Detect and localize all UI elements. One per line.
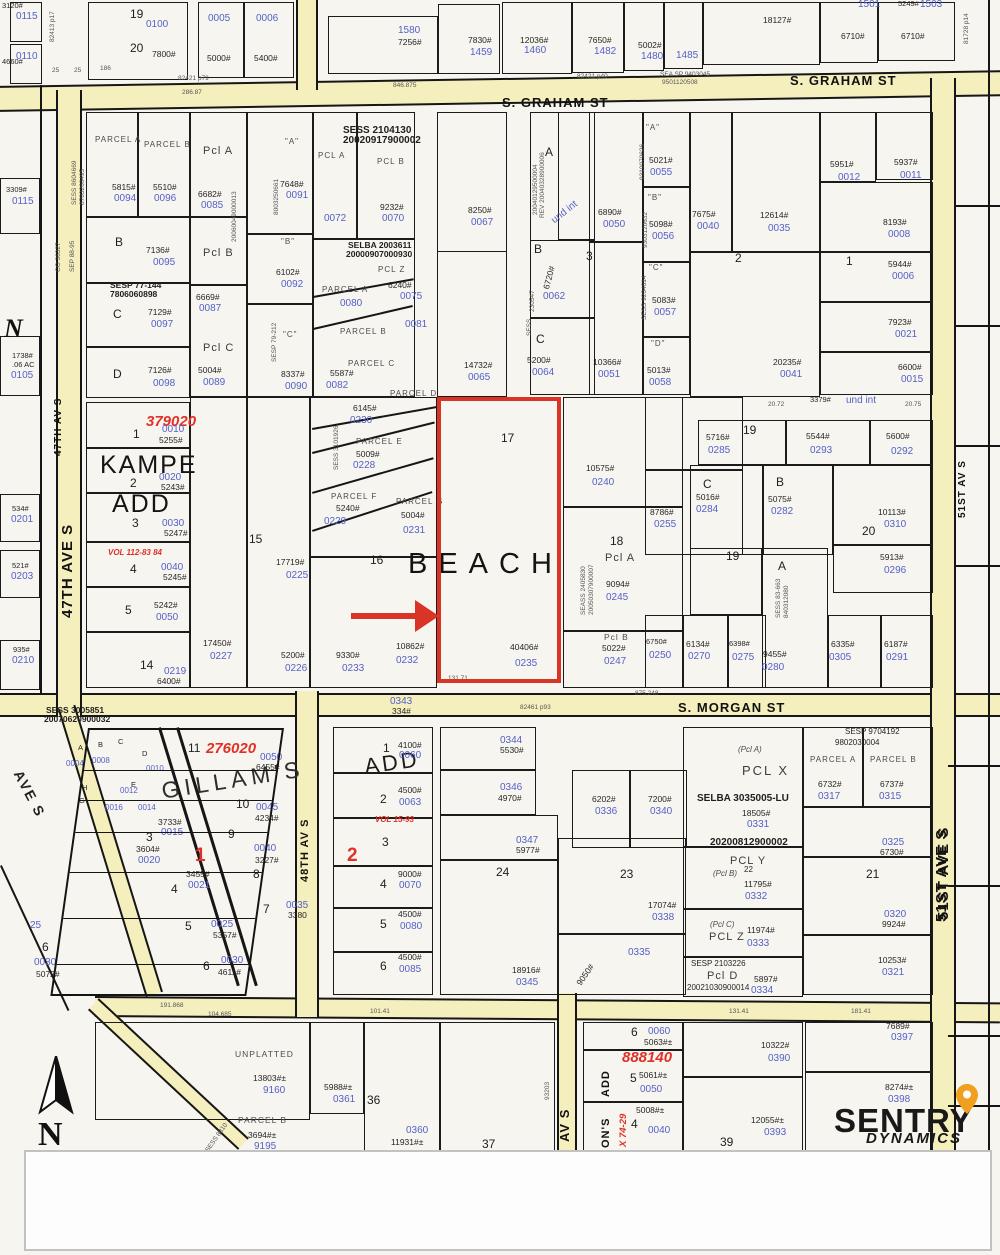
parcel-area-label: 3 bbox=[382, 836, 389, 848]
parcel-id-label: 0092 bbox=[281, 280, 303, 290]
parcel-name-label: PARCEL A bbox=[810, 756, 856, 764]
parcel-name-label: PARCEL B bbox=[144, 141, 191, 149]
street-name-label: ON'S bbox=[601, 1118, 612, 1148]
dimension-label: 840312080 bbox=[784, 585, 791, 618]
dimension-label: 186 bbox=[100, 66, 111, 73]
dimension-label: SESS 9204614 bbox=[642, 276, 649, 320]
street-name-label: 47TH AV S bbox=[54, 398, 64, 456]
parcel-area-label: 5016# bbox=[696, 493, 720, 502]
parcel-area-label: 22 bbox=[744, 866, 753, 874]
parcel-area-label: 9232# bbox=[380, 203, 404, 212]
parcel-id-label: 0067 bbox=[471, 218, 493, 228]
parcel-area-label: 1738# bbox=[12, 352, 33, 360]
street-name-label: 51ST AVE S bbox=[936, 827, 951, 920]
parcel-area-label: 9330# bbox=[336, 651, 360, 660]
parcel-area-label: 5815# bbox=[112, 183, 136, 192]
parcel-id-label: 0011 bbox=[900, 171, 922, 181]
parcel-id-label: 0282 bbox=[771, 507, 793, 517]
parcel-id-label: 0115 bbox=[16, 12, 38, 22]
parcel-id-label: 0060 bbox=[648, 1027, 670, 1037]
parcel-id-label: 0345 bbox=[516, 978, 538, 988]
parcel-area-label: 5 bbox=[630, 1072, 637, 1084]
parcel-area-label: 9000# bbox=[398, 870, 422, 879]
parcel-area-label: 4 bbox=[631, 1118, 638, 1130]
parcel-boundary bbox=[786, 420, 870, 465]
dimension-label: 846.875 bbox=[393, 83, 417, 90]
parcel-area-label: 12055#± bbox=[751, 1116, 784, 1125]
subdivision-name-label: N bbox=[4, 316, 23, 342]
parcel-area-label: 7806060898 bbox=[110, 290, 157, 299]
dimension-label: 8003250661 bbox=[274, 179, 281, 215]
parcel-area-label: 9455# bbox=[763, 650, 787, 659]
parcel-area-label: 6600# bbox=[898, 363, 922, 372]
plat-number-label: VOL 15-93 bbox=[375, 816, 414, 824]
parcel-area-label: 4 bbox=[130, 563, 137, 575]
parcel-area-label: 18 bbox=[610, 535, 623, 547]
parcel-area-label: SESP 2103226 bbox=[691, 960, 746, 968]
street-name-label: 48TH AV S bbox=[300, 819, 311, 882]
parcel-area-label: 24 bbox=[496, 866, 509, 878]
dimension-label: SESS 83-663 bbox=[776, 579, 783, 618]
parcel-area-label: 7256# bbox=[398, 38, 422, 47]
dimension-label: 104.685 bbox=[208, 1012, 232, 1019]
parcel-id-label: 0080 bbox=[400, 922, 422, 932]
parcel-area-label: 334# bbox=[392, 707, 411, 716]
highlight-arrow-head-icon bbox=[415, 600, 439, 632]
parcel-area-label: 6 bbox=[631, 1026, 638, 1038]
parcel-id-label: 0030 bbox=[34, 958, 56, 968]
parcel-boundary bbox=[870, 420, 933, 465]
parcel-id-label: 0006 bbox=[256, 14, 278, 24]
map-pin-icon bbox=[956, 1084, 978, 1119]
sentry-logo-subtext: DYNAMICS bbox=[866, 1130, 962, 1147]
parcel-area-label: 6750# bbox=[646, 638, 667, 646]
parcel-name-label: Pcl A bbox=[203, 146, 233, 157]
boundary-line bbox=[956, 325, 1000, 327]
parcel-id-label: 0305 bbox=[829, 653, 851, 663]
boundary-line bbox=[948, 765, 1000, 767]
parcel-id-label: 0095 bbox=[153, 258, 175, 268]
parcel-area-label: 10862# bbox=[396, 642, 424, 651]
north-label: N bbox=[38, 1116, 63, 1154]
parcel-area-label: 3120# bbox=[2, 2, 23, 10]
parcel-id-label: 0050 bbox=[603, 220, 625, 230]
parcel-name-label: "A" bbox=[285, 138, 299, 146]
parcel-id-label: 0094 bbox=[114, 194, 136, 204]
highlight-rectangle bbox=[437, 397, 561, 683]
parcel-area-label: 6134# bbox=[686, 640, 710, 649]
parcel-boundary bbox=[803, 807, 933, 857]
parcel-id-label: 0041 bbox=[780, 370, 802, 380]
parcel-area-label: 18505# bbox=[742, 809, 770, 818]
parcel-area-label: 5013# bbox=[647, 366, 671, 375]
boundary-line bbox=[988, 0, 990, 1150]
parcel-id-label: 0089 bbox=[203, 378, 225, 388]
parcel-id-label: 0336 bbox=[595, 807, 617, 817]
dimension-label: 101.41 bbox=[370, 1009, 390, 1016]
boundary-line bbox=[956, 565, 1000, 567]
dimension-label: 286.87 bbox=[182, 90, 202, 97]
parcel-boundary bbox=[440, 815, 558, 860]
parcel-area-label: 6737# bbox=[880, 780, 904, 789]
parcel-area-label: 6682# bbox=[198, 190, 222, 199]
parcel-area-label: 5988#± bbox=[324, 1083, 352, 1092]
parcel-area-label: 13803#± bbox=[253, 1074, 286, 1083]
parcel-area-label: 5400# bbox=[254, 54, 278, 63]
parcel-name-label: PARCEL A bbox=[322, 286, 368, 294]
parcel-id-label: 0065 bbox=[468, 373, 490, 383]
parcel-area-label: 5 bbox=[125, 604, 132, 616]
parcel-area-label: 19 bbox=[130, 8, 143, 20]
parcel-area-label: 14 bbox=[140, 659, 153, 671]
dimension-label: 20060049000013 bbox=[232, 191, 239, 242]
parcel-area-label: 20020917900002 bbox=[343, 136, 421, 146]
parcel-area-label: 10253# bbox=[878, 956, 906, 965]
parcel-area-label: 20235# bbox=[773, 358, 801, 367]
dimension-label: 230547 bbox=[530, 290, 537, 312]
parcel-id-label: 0333 bbox=[747, 939, 769, 949]
parcel-area-label: 1 bbox=[383, 742, 390, 754]
parcel-id-label: 0390 bbox=[768, 1054, 790, 1064]
parcel-name-label: Pcl D bbox=[707, 971, 738, 982]
parcel-area-label: 3 bbox=[132, 517, 139, 529]
parcel-area-label: 4 bbox=[380, 878, 387, 890]
parcel-area-label: 37 bbox=[482, 1138, 495, 1150]
parcel-id-label: 0050 bbox=[156, 613, 178, 623]
parcel-area-label: 15 bbox=[249, 533, 262, 545]
parcel-area-label: 8337# bbox=[281, 370, 305, 379]
parcel-area-label: SELBA 3035005-LU bbox=[697, 794, 789, 804]
parcel-area-label: 5022# bbox=[602, 644, 626, 653]
parcel-id-label: 0070 bbox=[382, 214, 404, 224]
parcel-id-label: 0232 bbox=[396, 656, 418, 666]
parcel-id-label: 0051 bbox=[598, 370, 620, 380]
parcel-id-label: 0331 bbox=[747, 820, 769, 830]
parcel-id-label: 0021 bbox=[895, 330, 917, 340]
parcel-name-label: PCL B bbox=[377, 158, 405, 166]
parcel-area-label: 6240# bbox=[388, 281, 412, 290]
parcel-name-label: "B" bbox=[281, 238, 295, 246]
parcel-id-label: 0210 bbox=[12, 656, 34, 666]
parcel-id-label: 0397 bbox=[891, 1033, 913, 1043]
parcel-id-label: 0015 bbox=[901, 375, 923, 385]
parcel-id-label: 0100 bbox=[146, 20, 168, 30]
parcel-divider bbox=[70, 872, 262, 873]
parcel-id-label: 0105 bbox=[11, 371, 33, 381]
parcel-area-label: 5249# bbox=[898, 0, 919, 8]
parcel-id-label: 0245 bbox=[606, 593, 628, 603]
parcel-area-label: 16 bbox=[370, 554, 383, 566]
parcel-id-label: 0233 bbox=[342, 664, 364, 674]
gillam-block-outline bbox=[50, 728, 284, 996]
parcel-id-label: 0008 bbox=[888, 230, 910, 240]
parcel-area-label: 3694#± bbox=[248, 1131, 276, 1140]
parcel-area-label: D bbox=[113, 368, 122, 380]
parcel-area-label: A bbox=[778, 560, 786, 572]
parcel-area-label: 7126# bbox=[148, 366, 172, 375]
parcel-area-label: 2 bbox=[380, 793, 387, 805]
parcel-area-label: 20 bbox=[130, 42, 143, 54]
parcel-id-label: 0240 bbox=[592, 478, 614, 488]
parcel-area-label: 4660# bbox=[2, 58, 23, 66]
parcel-name-label: PARCEL E bbox=[356, 438, 403, 446]
parcel-id-label: 0090 bbox=[285, 382, 307, 392]
parcel-id-label: 0315 bbox=[879, 792, 901, 802]
parcel-area-label: 4500# bbox=[398, 786, 422, 795]
dimension-label: 191.868 bbox=[160, 1003, 184, 1010]
parcel-area-label: B bbox=[776, 476, 784, 488]
parcel-area-label: 521# bbox=[12, 562, 29, 570]
parcel-boundary bbox=[703, 2, 820, 65]
subdivision-name-label: ADD bbox=[112, 492, 171, 517]
parcel-id-label: 0201 bbox=[11, 515, 33, 525]
parcel-id-label: 0063 bbox=[399, 798, 421, 808]
parcel-area-label: 7650# bbox=[588, 36, 612, 45]
dimension-label: REV 20040328900006 bbox=[540, 152, 547, 218]
parcel-area-label: 6890# bbox=[598, 208, 622, 217]
parcel-boundary bbox=[820, 182, 933, 252]
parcel-area-label: 4500# bbox=[398, 953, 422, 962]
parcel-area-label: SESP 9704192 bbox=[845, 728, 900, 736]
parcel-id-label: 0285 bbox=[708, 446, 730, 456]
parcel-id-label: 1459 bbox=[470, 48, 492, 58]
parcel-area-label: 5242# bbox=[154, 601, 178, 610]
parcel-name-label: "C" bbox=[283, 331, 297, 339]
subdivision-name-label: AVE S bbox=[12, 768, 48, 820]
parcel-area-label: 7648# bbox=[280, 180, 304, 189]
parcel-area-label: 5977# bbox=[516, 846, 540, 855]
street-name-label: ADD bbox=[601, 1070, 612, 1097]
parcel-area-label: 5098# bbox=[649, 220, 673, 229]
parcel-boundary bbox=[820, 252, 933, 302]
plat-number-label: VOL 112-83 84 bbox=[108, 549, 162, 557]
parcel-id-label: 0310 bbox=[884, 520, 906, 530]
parcel-area-label: 18127# bbox=[763, 16, 791, 25]
parcel-id-label: 0361 bbox=[333, 1095, 355, 1105]
dimension-label: 82421 p79 bbox=[178, 76, 209, 83]
parcel-area-label: 6102# bbox=[276, 268, 300, 277]
street-name-label: 51ST AV S bbox=[958, 460, 968, 518]
parcel-area-label: C bbox=[113, 308, 122, 320]
dimension-label: 20.72 bbox=[768, 402, 784, 409]
parcel-id-label: 0293 bbox=[810, 446, 832, 456]
parcel-area-label: 11974# bbox=[747, 926, 775, 935]
parcel-id-label: 1482 bbox=[594, 47, 616, 57]
parcel-id-label: 0004 bbox=[66, 760, 84, 768]
dimension-label: SESP 79-212 bbox=[272, 323, 279, 362]
parcel-name-label: (Pcl A) bbox=[738, 746, 762, 754]
parcel-area-label: 21 bbox=[866, 868, 879, 880]
parcel-area-label: 6669# bbox=[196, 293, 220, 302]
parcel-id-label: 0010 bbox=[162, 425, 184, 435]
street-name-label: AV S bbox=[558, 1109, 571, 1142]
parcel-id-label: 0340 bbox=[650, 807, 672, 817]
parcel-boundary bbox=[86, 217, 190, 283]
dimension-label: CO 36327 bbox=[56, 242, 63, 272]
parcel-area-label: 20000907000930 bbox=[346, 250, 412, 259]
parcel-area-label: 10366# bbox=[593, 358, 621, 367]
dimension-label: 8703260495 bbox=[80, 169, 87, 205]
parcel-id-label: 0081 bbox=[405, 320, 427, 330]
parcel-id-label: 0085 bbox=[201, 201, 223, 211]
parcel-id-label: 0082 bbox=[326, 381, 348, 391]
parcel-area-label: 6335# bbox=[831, 640, 855, 649]
parcel-id-label: 0035 bbox=[768, 224, 790, 234]
parcel-area-label: 6732# bbox=[818, 780, 842, 789]
street-name-label: S. GRAHAM ST bbox=[502, 96, 609, 109]
street-road bbox=[296, 0, 318, 90]
parcel-area-label: 6187# bbox=[884, 640, 908, 649]
parcel-name-label: Pcl C bbox=[203, 343, 234, 354]
parcel-area-label: 8786# bbox=[650, 508, 674, 517]
parcel-area-label: 8250# bbox=[468, 206, 492, 215]
parcel-id-label: 0060 bbox=[399, 751, 421, 761]
parcel-id-label: 0091 bbox=[286, 191, 308, 201]
parcel-id-label: 0230 bbox=[350, 416, 372, 426]
parcel-id-label: 1480 bbox=[641, 52, 663, 62]
parcel-name-label: PCL Z bbox=[709, 932, 745, 943]
parcel-area-label: 935# bbox=[13, 646, 30, 654]
parcel-id-label: 0080 bbox=[340, 299, 362, 309]
parcel-area-label: 3379# bbox=[810, 396, 831, 404]
street-name-label: S. GRAHAM ST bbox=[790, 74, 897, 87]
parcel-area-label: 4970# bbox=[498, 794, 522, 803]
parcel-id-label: 0247 bbox=[604, 657, 626, 667]
parcel-name-label: PCL Z bbox=[378, 266, 405, 274]
parcel-divider bbox=[75, 832, 267, 833]
parcel-area-label: 1 bbox=[133, 428, 140, 440]
dimension-label: 20050307900007 bbox=[589, 564, 596, 615]
parcel-area-label: 5544# bbox=[806, 432, 830, 441]
street-road bbox=[930, 78, 956, 1155]
boundary-line bbox=[948, 885, 1000, 887]
parcel-id-label: 0012 bbox=[838, 173, 860, 183]
parcel-id-label: 0098 bbox=[153, 379, 175, 389]
parcel-id-label: 0005 bbox=[208, 14, 230, 24]
parcel-id-label: 0058 bbox=[649, 378, 671, 388]
parcel-id-label: 0335 bbox=[628, 948, 650, 958]
parcel-id-label: 0203 bbox=[11, 572, 33, 582]
parcel-id-label: 0255 bbox=[654, 520, 676, 530]
parcel-area-label: 6 bbox=[42, 941, 49, 953]
parcel-area-label: 6145# bbox=[353, 404, 377, 413]
parcel-area-label: 14732# bbox=[464, 361, 492, 370]
boundary-line bbox=[948, 1035, 1000, 1037]
parcel-area-label: 5510# bbox=[153, 183, 177, 192]
parcel-id-label: 0228 bbox=[353, 461, 375, 471]
parcel-id-label: 0346 bbox=[500, 783, 522, 793]
parcel-name-label: Pcl B bbox=[203, 248, 234, 259]
parcel-area-label: 5255# bbox=[159, 436, 183, 445]
parcel-area-label: 5240# bbox=[336, 504, 360, 513]
dimension-label: SESS 3101926 bbox=[334, 426, 341, 470]
parcel-boundary bbox=[95, 1022, 310, 1120]
parcel-area-label: 4100# bbox=[398, 741, 422, 750]
parcel-area-label: 3380 bbox=[288, 911, 307, 920]
parcel-area-label: 5600# bbox=[886, 432, 910, 441]
parcel-name-label: PARCEL F bbox=[331, 493, 377, 501]
dimension-label: 9303120632 bbox=[643, 212, 650, 248]
parcel-area-label: C bbox=[536, 333, 545, 345]
parcel-divider bbox=[80, 800, 272, 801]
parcel-area-label: 7200# bbox=[648, 795, 672, 804]
parcel-area-label: 11795# bbox=[744, 880, 772, 889]
parcel-boundary bbox=[86, 347, 190, 398]
parcel-id-label: 0393 bbox=[764, 1128, 786, 1138]
parcel-name-label: PARCEL A bbox=[95, 136, 141, 144]
parcel-id-label: 0317 bbox=[818, 792, 840, 802]
street-name-label: S. MORGAN ST bbox=[678, 701, 785, 714]
parcel-id-label: 0250 bbox=[649, 651, 671, 661]
parcel-area-label: 5009# bbox=[356, 450, 380, 459]
parcel-id-label: und int bbox=[846, 396, 876, 406]
parcel-divider bbox=[84, 770, 276, 771]
parcel-area-label: 6 bbox=[380, 960, 387, 972]
parcel-area-label: 6400# bbox=[157, 677, 181, 686]
parcel-name-label: "D" bbox=[651, 340, 665, 348]
parcel-id-label: 0050 bbox=[640, 1085, 662, 1095]
parcel-id-label: 0231 bbox=[403, 526, 425, 536]
parcel-boundary bbox=[683, 1077, 803, 1152]
parcel-area-label: 1 bbox=[846, 255, 853, 267]
parcel-area-label: 7129# bbox=[148, 308, 172, 317]
dimension-label: 25 bbox=[52, 68, 59, 75]
dimension-label: SEASS 2405830 bbox=[581, 566, 588, 615]
parcel-area-label: 5951# bbox=[830, 160, 854, 169]
parcel-boundary bbox=[833, 465, 933, 545]
parcel-area-label: 5944# bbox=[888, 260, 912, 269]
parcel-id-label: 0291 bbox=[886, 653, 908, 663]
parcel-id-label: 0115 bbox=[12, 197, 34, 207]
parcel-id-label: 0275 bbox=[732, 653, 754, 663]
dimension-label: 82421 p40 bbox=[577, 74, 608, 81]
parcel-id-label: 0096 bbox=[154, 194, 176, 204]
dimension-label: 131.41 bbox=[729, 1009, 749, 1016]
parcel-boundary bbox=[364, 1022, 440, 1152]
parcel-area-label: 19 bbox=[726, 550, 739, 562]
parcel-area-label: 11931#± bbox=[391, 1138, 423, 1147]
parcel-area-label: 36 bbox=[367, 1094, 380, 1106]
parcel-id-label: 0097 bbox=[151, 320, 173, 330]
parcel-area-label: 5002# bbox=[638, 41, 662, 50]
parcel-boundary bbox=[558, 934, 686, 995]
parcel-area-label: 6202# bbox=[592, 795, 616, 804]
parcel-area-label: 9924# bbox=[882, 920, 906, 929]
parcel-name-label: Pcl B bbox=[604, 633, 629, 642]
parcel-id-label: 0040 bbox=[648, 1126, 670, 1136]
parcel-id-label: 0284 bbox=[696, 505, 718, 515]
parcel-area-label: 20021030900014 bbox=[687, 984, 749, 992]
parcel-area-label: 7136# bbox=[146, 246, 170, 255]
parcel-id-label: 0296 bbox=[884, 566, 906, 576]
parcel-boundary bbox=[698, 420, 786, 465]
parcel-name-label: PARCEL C bbox=[348, 360, 395, 368]
parcel-area-label: 6710# bbox=[901, 32, 925, 41]
parcel-area-label: 5530# bbox=[500, 746, 524, 755]
subdivision-name-label: KAMPE bbox=[100, 453, 198, 478]
dimension-label: 9501120508 bbox=[662, 80, 698, 87]
parcel-id-label: 0075 bbox=[400, 292, 422, 302]
parcel-id-label: 0225 bbox=[286, 571, 308, 581]
street-name-label: 47TH AVE S bbox=[60, 524, 75, 618]
plat-map: 01153120#01104660#82413 p17190100207800#… bbox=[0, 0, 1000, 1255]
parcel-name-label: PCL X bbox=[742, 764, 789, 777]
parcel-area-label: 5 bbox=[380, 918, 387, 930]
parcel-area-label: 9802030004 bbox=[835, 739, 880, 747]
parcel-area-label: 5716# bbox=[706, 433, 730, 442]
parcel-id-label: 0332 bbox=[745, 892, 767, 902]
parcel-id-label: 0360 bbox=[406, 1126, 428, 1136]
